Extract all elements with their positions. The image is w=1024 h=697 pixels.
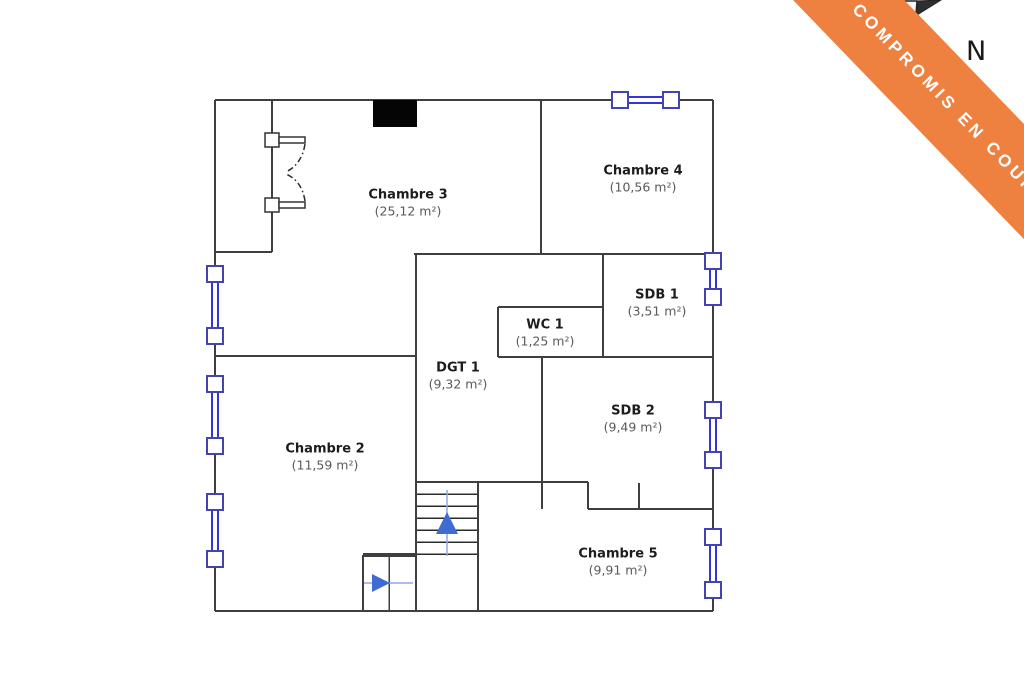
room-area: (10,56 m²) [603,180,682,196]
room-label-chambre-3: Chambre 3 (25,12 m²) [368,187,447,220]
room-label-wc-1: WC 1 (1,25 m²) [516,317,575,350]
window-icon-right-2 [705,402,721,468]
floor-plan: Chambre 3 (25,12 m²) Chambre 4 (10,56 m²… [0,0,1024,697]
room-name: SDB 1 [628,287,687,304]
room-label-sdb-2: SDB 2 (9,49 m²) [604,403,663,436]
room-label-chambre-2: Chambre 2 (11,59 m²) [285,441,364,474]
room-area: (11,59 m²) [285,458,364,474]
room-name: Chambre 3 [368,187,447,204]
room-area: (9,49 m²) [604,420,663,436]
window-icon-left-1 [207,266,223,344]
window-icon-top [612,92,679,108]
room-name: Chambre 4 [603,163,682,180]
room-area: (9,32 m²) [429,377,488,393]
room-area: (3,51 m²) [628,304,687,320]
stairs-up-arrow-icon [436,490,458,556]
fireplace-icon [373,100,417,127]
room-name: Chambre 2 [285,441,364,458]
room-label-dgt-1: DGT 1 (9,32 m²) [429,360,488,393]
room-label-chambre-4: Chambre 4 (10,56 m²) [603,163,682,196]
room-name: DGT 1 [429,360,488,377]
window-icon-left-2 [207,376,223,454]
room-name: WC 1 [516,317,575,334]
floor-plan-canvas [0,0,1024,697]
window-icon-left-3 [207,494,223,567]
window-icon-right-3 [705,529,721,598]
room-name: Chambre 5 [578,546,657,563]
room-area: (9,91 m²) [578,563,657,579]
room-name: SDB 2 [604,403,663,420]
room-label-sdb-1: SDB 1 (3,51 m²) [628,287,687,320]
room-area: (25,12 m²) [368,204,447,220]
window-icon-right-1 [705,253,721,305]
staircase [364,490,477,592]
room-area: (1,25 m²) [516,334,575,350]
room-label-chambre-5: Chambre 5 (9,91 m²) [578,546,657,579]
compass-north-label: N [966,36,986,67]
